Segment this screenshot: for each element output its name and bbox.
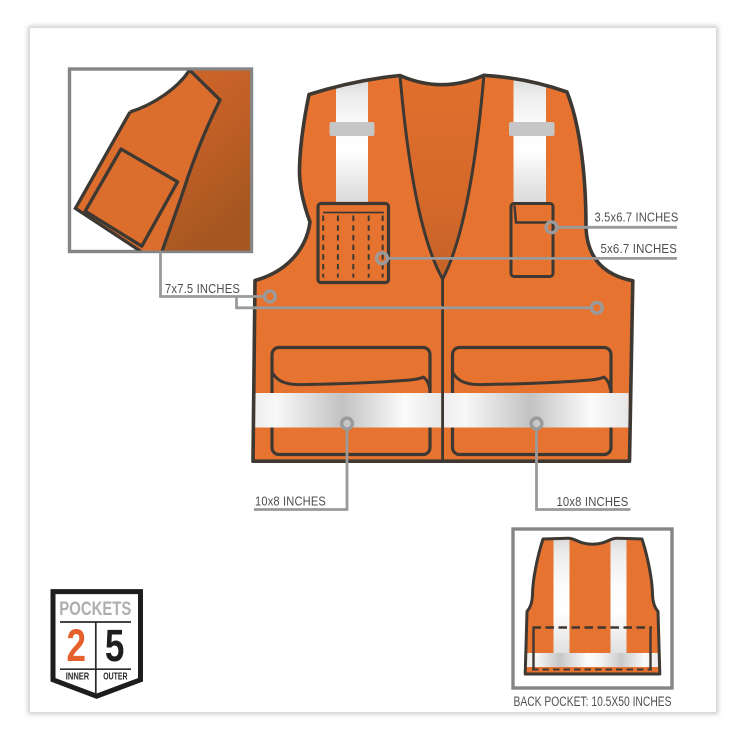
svg-text:POCKETS: POCKETS bbox=[59, 598, 131, 620]
svg-text:10x8 INCHES: 10x8 INCHES bbox=[255, 494, 326, 509]
svg-text:2: 2 bbox=[66, 620, 86, 671]
svg-text:7x7.5 INCHES: 7x7.5 INCHES bbox=[165, 281, 240, 296]
svg-text:5: 5 bbox=[105, 620, 125, 671]
svg-text:3.5x6.7 INCHES: 3.5x6.7 INCHES bbox=[595, 210, 679, 225]
svg-text:BACK POCKET: 10.5X50 INCHES: BACK POCKET: 10.5X50 INCHES bbox=[514, 694, 672, 709]
svg-text:OUTER: OUTER bbox=[103, 672, 128, 683]
svg-text:INNER: INNER bbox=[66, 672, 90, 683]
svg-text:10x8 INCHES: 10x8 INCHES bbox=[557, 494, 629, 509]
svg-text:5x6.7 INCHES: 5x6.7 INCHES bbox=[601, 241, 678, 256]
